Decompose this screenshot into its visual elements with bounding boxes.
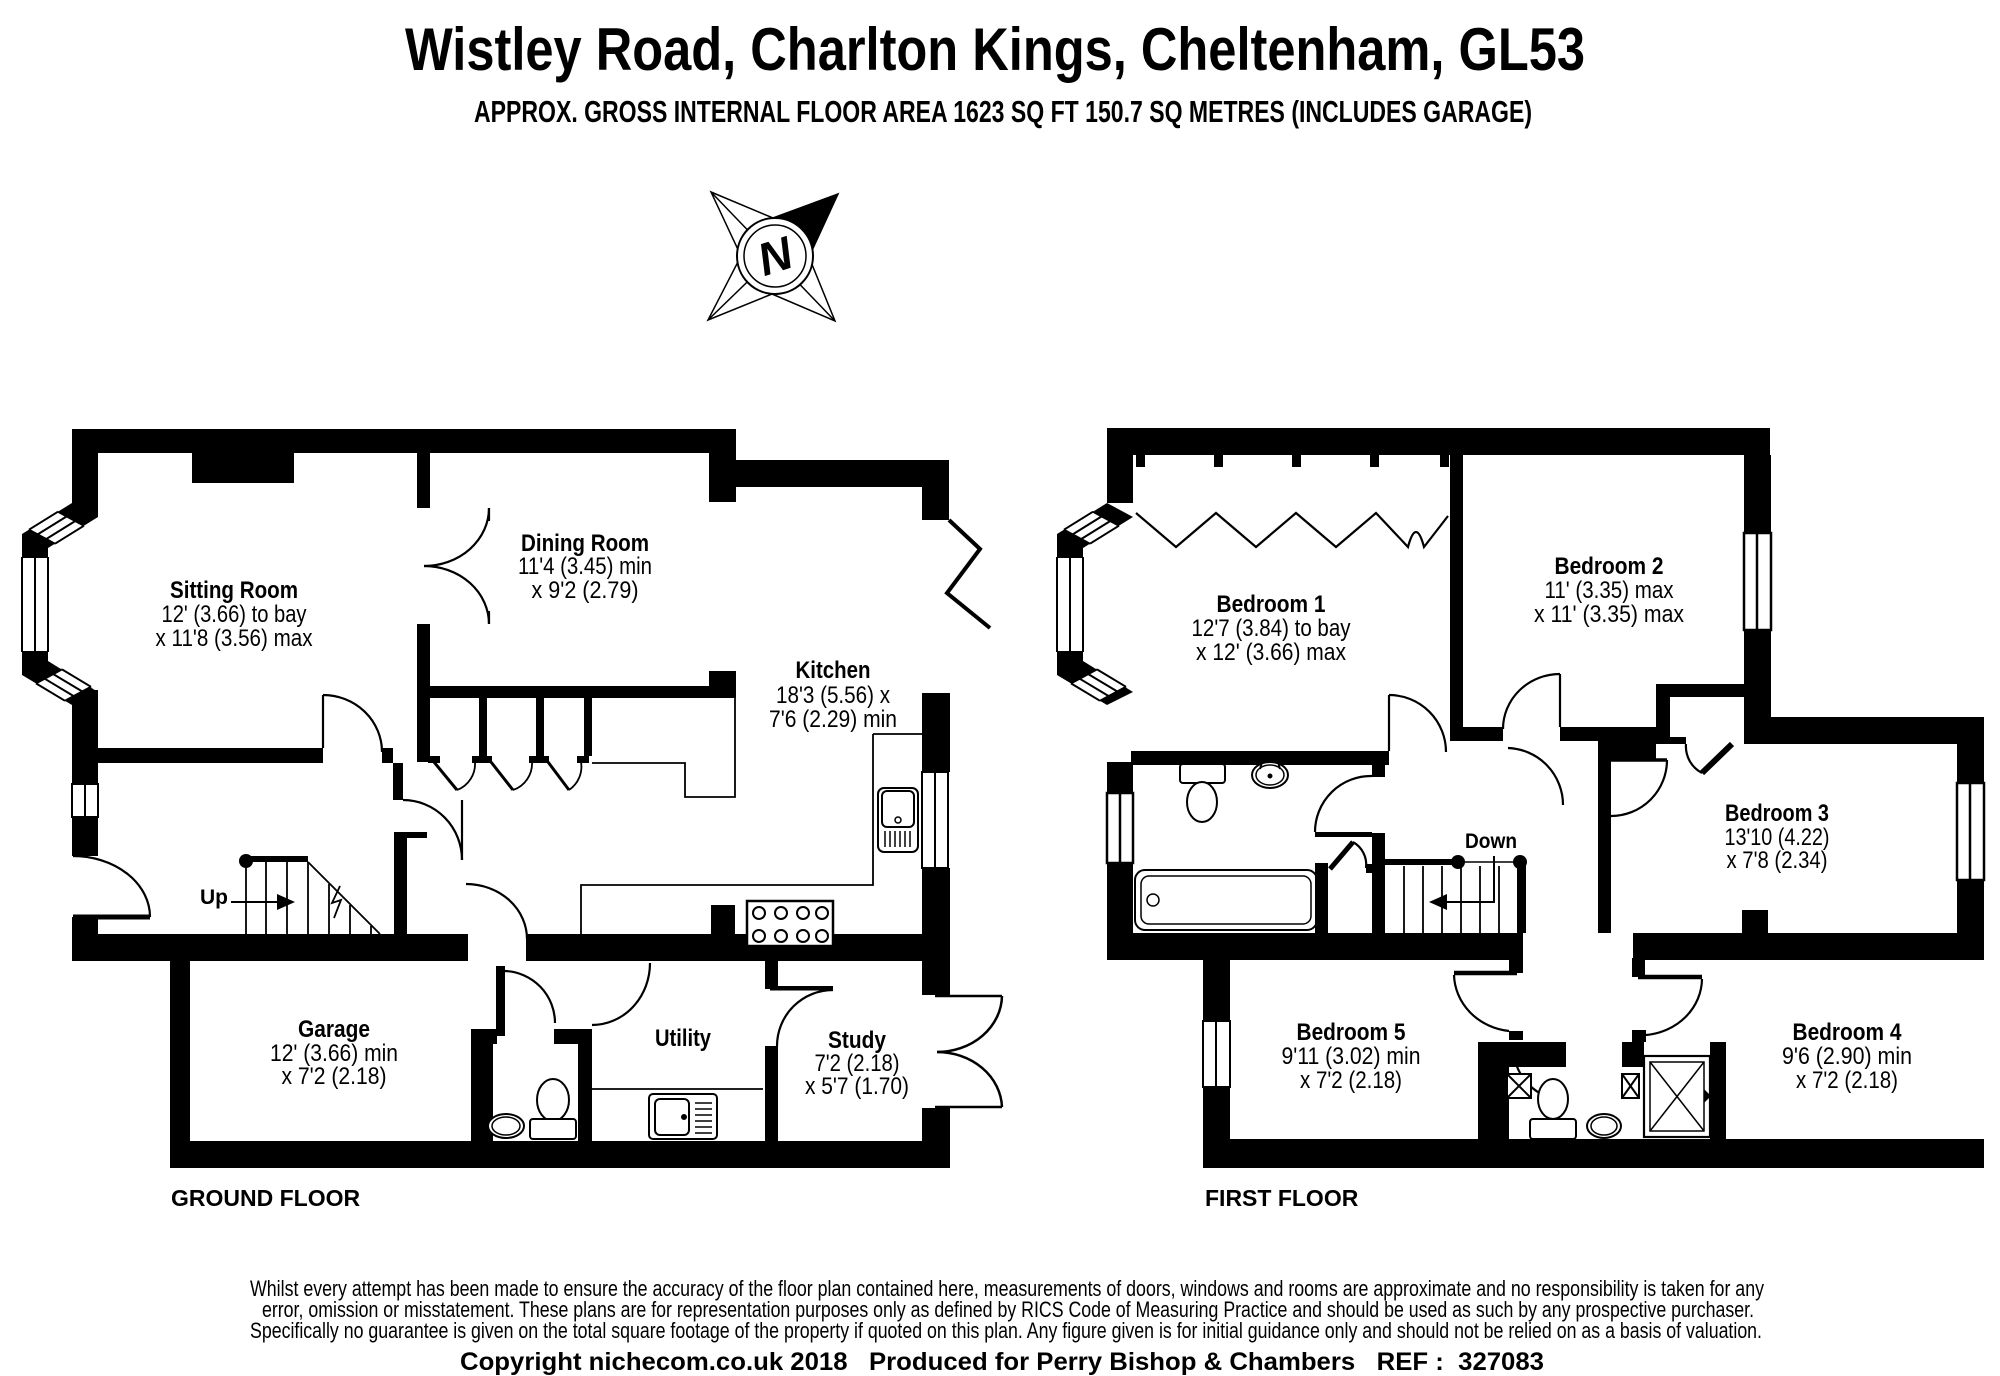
svg-text:Specifically no guarantee is g: Specifically no guarantee is given on th…	[250, 1318, 1762, 1343]
svg-text:9'6 (2.90) min: 9'6 (2.90) min	[1782, 1043, 1912, 1070]
svg-text:GROUND FLOOR: GROUND FLOOR	[171, 1185, 360, 1211]
svg-text:Utility: Utility	[655, 1025, 712, 1052]
svg-text:Bedroom 2: Bedroom 2	[1555, 553, 1664, 580]
svg-text:FIRST FLOOR: FIRST FLOOR	[1205, 1185, 1359, 1211]
svg-text:x 7'2 (2.18): x 7'2 (2.18)	[1796, 1067, 1898, 1094]
svg-text:Bedroom 4: Bedroom 4	[1793, 1019, 1903, 1046]
svg-text:Kitchen: Kitchen	[796, 657, 871, 684]
svg-text:APPROX. GROSS INTERNAL FLOOR A: APPROX. GROSS INTERNAL FLOOR AREA 1623 S…	[474, 94, 1532, 129]
svg-text:x 12' (3.66) max: x 12' (3.66) max	[1196, 639, 1346, 666]
svg-text:Bedroom 5: Bedroom 5	[1297, 1019, 1406, 1046]
svg-text:18'3 (5.56) x: 18'3 (5.56) x	[776, 682, 890, 709]
svg-text:x 7'2 (2.18): x 7'2 (2.18)	[282, 1063, 387, 1090]
svg-text:11' (3.35) max: 11' (3.35) max	[1545, 577, 1674, 604]
svg-text:Copyright nichecom.co.uk 2018: Copyright nichecom.co.uk 2018 Produced f…	[460, 1348, 1544, 1376]
svg-text:Up: Up	[200, 886, 228, 909]
svg-text:Down: Down	[1465, 830, 1517, 853]
svg-text:x 7'2 (2.18): x 7'2 (2.18)	[1300, 1067, 1402, 1094]
svg-text:Sitting Room: Sitting Room	[170, 577, 298, 604]
svg-text:Wistley Road, Charlton Kings,: Wistley Road, Charlton Kings, Cheltenham…	[405, 16, 1585, 83]
svg-text:Bedroom 1: Bedroom 1	[1217, 591, 1326, 618]
svg-text:7'6 (2.29) min: 7'6 (2.29) min	[769, 706, 897, 733]
svg-text:11'4 (3.45) min: 11'4 (3.45) min	[518, 553, 652, 580]
svg-text:12'7 (3.84) to bay: 12'7 (3.84) to bay	[1192, 615, 1351, 642]
svg-text:Bedroom 3: Bedroom 3	[1725, 800, 1829, 827]
svg-text:x 9'2 (2.79): x 9'2 (2.79)	[532, 577, 639, 604]
svg-text:x 5'7 (1.70): x 5'7 (1.70)	[805, 1073, 909, 1100]
svg-text:12' (3.66) to bay: 12' (3.66) to bay	[162, 601, 307, 628]
svg-text:x 11' (3.35) max: x 11' (3.35) max	[1534, 601, 1684, 628]
svg-text:x 7'8 (2.34): x 7'8 (2.34)	[1727, 847, 1828, 874]
svg-text:Garage: Garage	[298, 1016, 370, 1043]
svg-text:9'11 (3.02) min: 9'11 (3.02) min	[1282, 1043, 1421, 1070]
svg-text:x 11'8 (3.56) max: x 11'8 (3.56) max	[156, 625, 313, 652]
